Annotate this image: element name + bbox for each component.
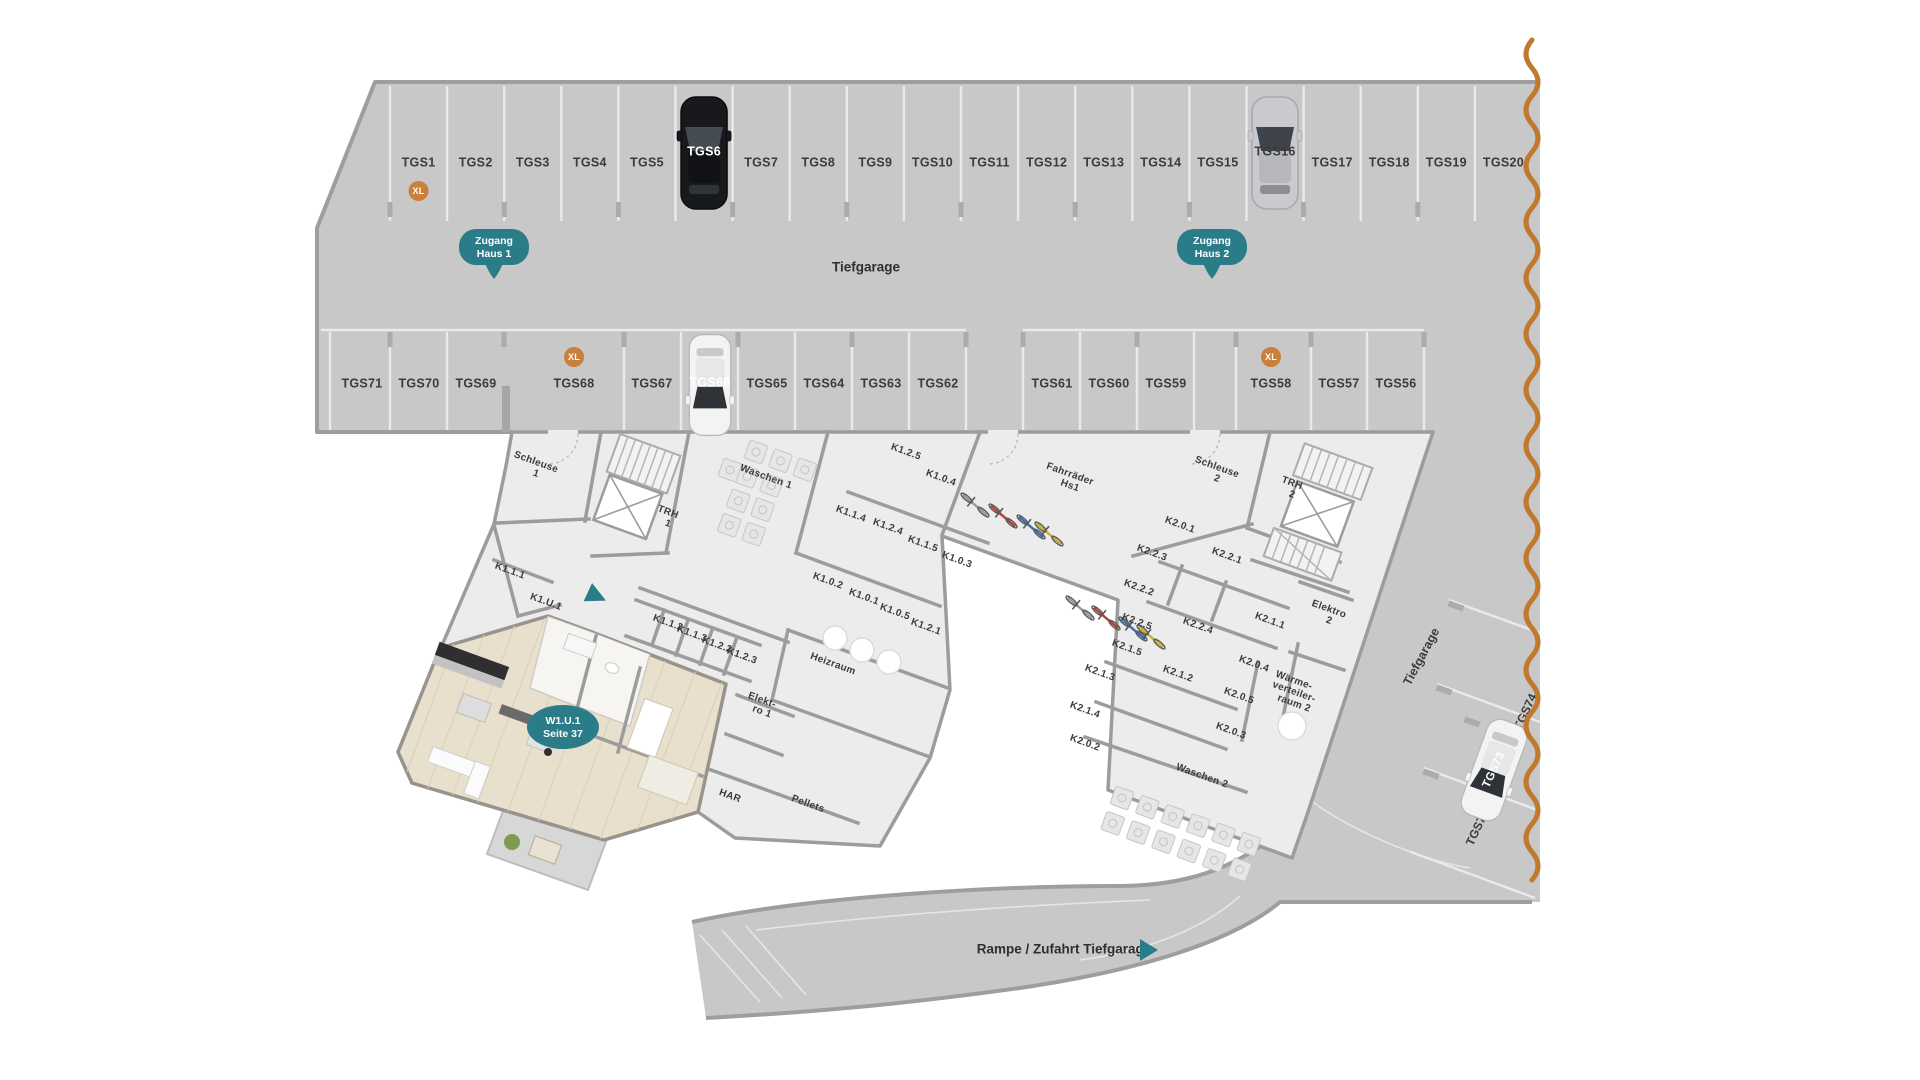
xl-badge-label: XL (568, 352, 580, 362)
parking-spot-label-tgs1: TGS1 (402, 155, 436, 169)
parking-spot-label-tgs67: TGS67 (631, 376, 672, 390)
apartment-badge-id: W1.U.1 (545, 715, 580, 727)
xl-badge: XL (409, 181, 429, 201)
parking-spot-label-tgs13: TGS13 (1083, 155, 1124, 169)
plant-icon (504, 834, 520, 850)
parking-spot-label-tgs70: TGS70 (398, 376, 439, 390)
parking-spot-label-tgs66-on-car: TGS66 (689, 375, 730, 389)
washing-machine-icon (1126, 820, 1150, 844)
parking-spot-label-tgs59: TGS59 (1145, 376, 1186, 390)
parking-spot-label-tgs61: TGS61 (1031, 376, 1072, 390)
parking-spot-label-tgs6-on-car: TGS6 (687, 144, 721, 158)
parking-spot-label-tgs16-on-car: TGS16 (1254, 144, 1295, 158)
parking-spot-label-tgs17: TGS17 (1312, 155, 1353, 169)
parking-spot-label-tgs14: TGS14 (1140, 155, 1181, 169)
parking-spot-label-tgs69: TGS69 (455, 376, 496, 390)
xl-badge: XL (1261, 347, 1281, 367)
tiefgarage-floorplan: TGS1XLTGS2TGS3TGS4TGS5TGS6TGS7TGS8TGS9TG… (0, 0, 1920, 1080)
parking-spot-label-tgs62: TGS62 (917, 376, 958, 390)
parking-spot-label-tgs4: TGS4 (573, 155, 607, 169)
floorplan-page: TGS1XLTGS2TGS3TGS4TGS5TGS6TGS7TGS8TGS9TG… (0, 0, 1920, 1080)
parking-spot-label-tgs15: TGS15 (1197, 155, 1238, 169)
parking-spot-label-tgs20: TGS20 (1483, 155, 1524, 169)
badge-line2: Haus 1 (477, 248, 512, 260)
parking-spot-label-tgs57: TGS57 (1318, 376, 1359, 390)
parking-spot-label-tgs9: TGS9 (858, 155, 892, 169)
parking-spot-label-tgs2: TGS2 (459, 155, 493, 169)
parking-spot-label-tgs63: TGS63 (860, 376, 901, 390)
parking-spot-label-tgs56: TGS56 (1375, 376, 1416, 390)
parking-spot-label-tgs10: TGS10 (912, 155, 953, 169)
parking-spot-label-tgs19: TGS19 (1426, 155, 1467, 169)
parking-spot-label-tgs5: TGS5 (630, 155, 664, 169)
parking-spot-label-tgs64: TGS64 (803, 376, 844, 390)
parking-spot-label-tgs3: TGS3 (516, 155, 550, 169)
parking-spot-label-tgs68: TGS68 (553, 376, 594, 390)
badge-line2: Haus 2 (1195, 248, 1230, 260)
parking-spot-label-tgs11: TGS11 (969, 155, 1009, 169)
badge-line1: Zugang (1193, 235, 1231, 247)
parking-spot-label-tgs8: TGS8 (801, 155, 835, 169)
parking-spot-label-tgs65: TGS65 (746, 376, 787, 390)
apartment-badge-w1u1[interactable]: W1.U.1 Seite 37 (527, 705, 599, 749)
apartment-badge-page: Seite 37 (543, 728, 583, 740)
parking-spot-label-tgs18: TGS18 (1369, 155, 1410, 169)
badge-line1: Zugang (475, 235, 513, 247)
washing-machine-icon (1101, 811, 1125, 835)
washing-machine-icon (1151, 830, 1175, 854)
parking-spot-label-tgs58: TGS58 (1250, 376, 1291, 390)
washing-machine-icon (1177, 839, 1201, 863)
ramp-label: Rampe / Zufahrt Tiefgarage (977, 942, 1152, 957)
parking-spot-label-tgs60: TGS60 (1088, 376, 1129, 390)
aisle-tiefgarage-label: Tiefgarage (832, 260, 901, 275)
xl-badge-label: XL (412, 186, 424, 196)
xl-badge-label: XL (1265, 352, 1277, 362)
parking-spot-label-tgs7: TGS7 (744, 155, 778, 169)
parking-spot-label-tgs71: TGS71 (341, 376, 382, 390)
xl-badge: XL (564, 347, 584, 367)
parking-spot-label-tgs12: TGS12 (1026, 155, 1067, 169)
